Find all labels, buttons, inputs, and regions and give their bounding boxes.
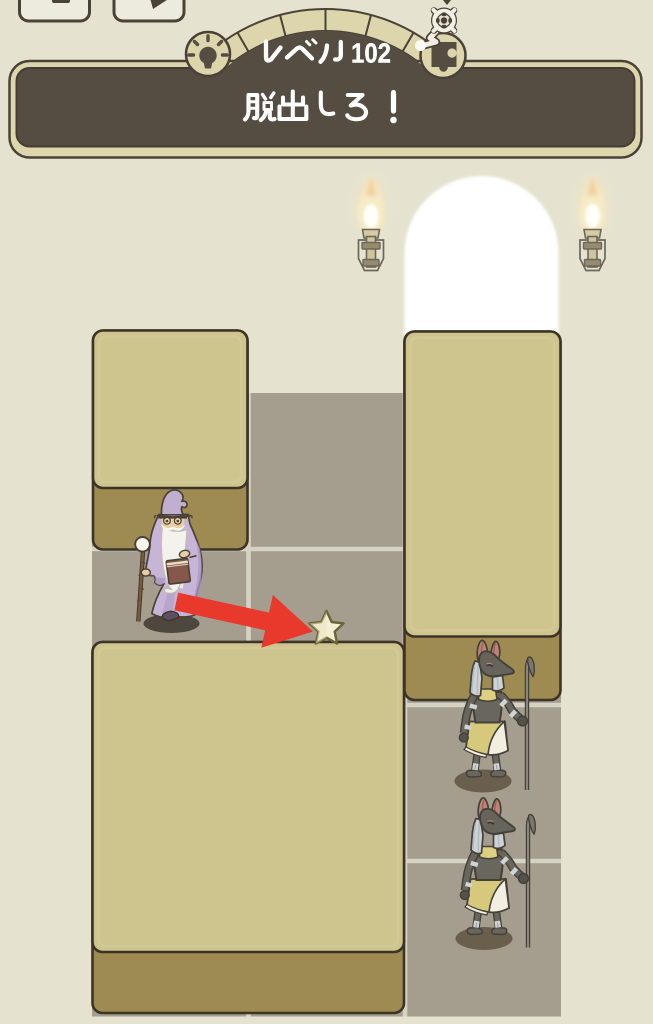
svg-text:102: 102 [351,38,391,69]
